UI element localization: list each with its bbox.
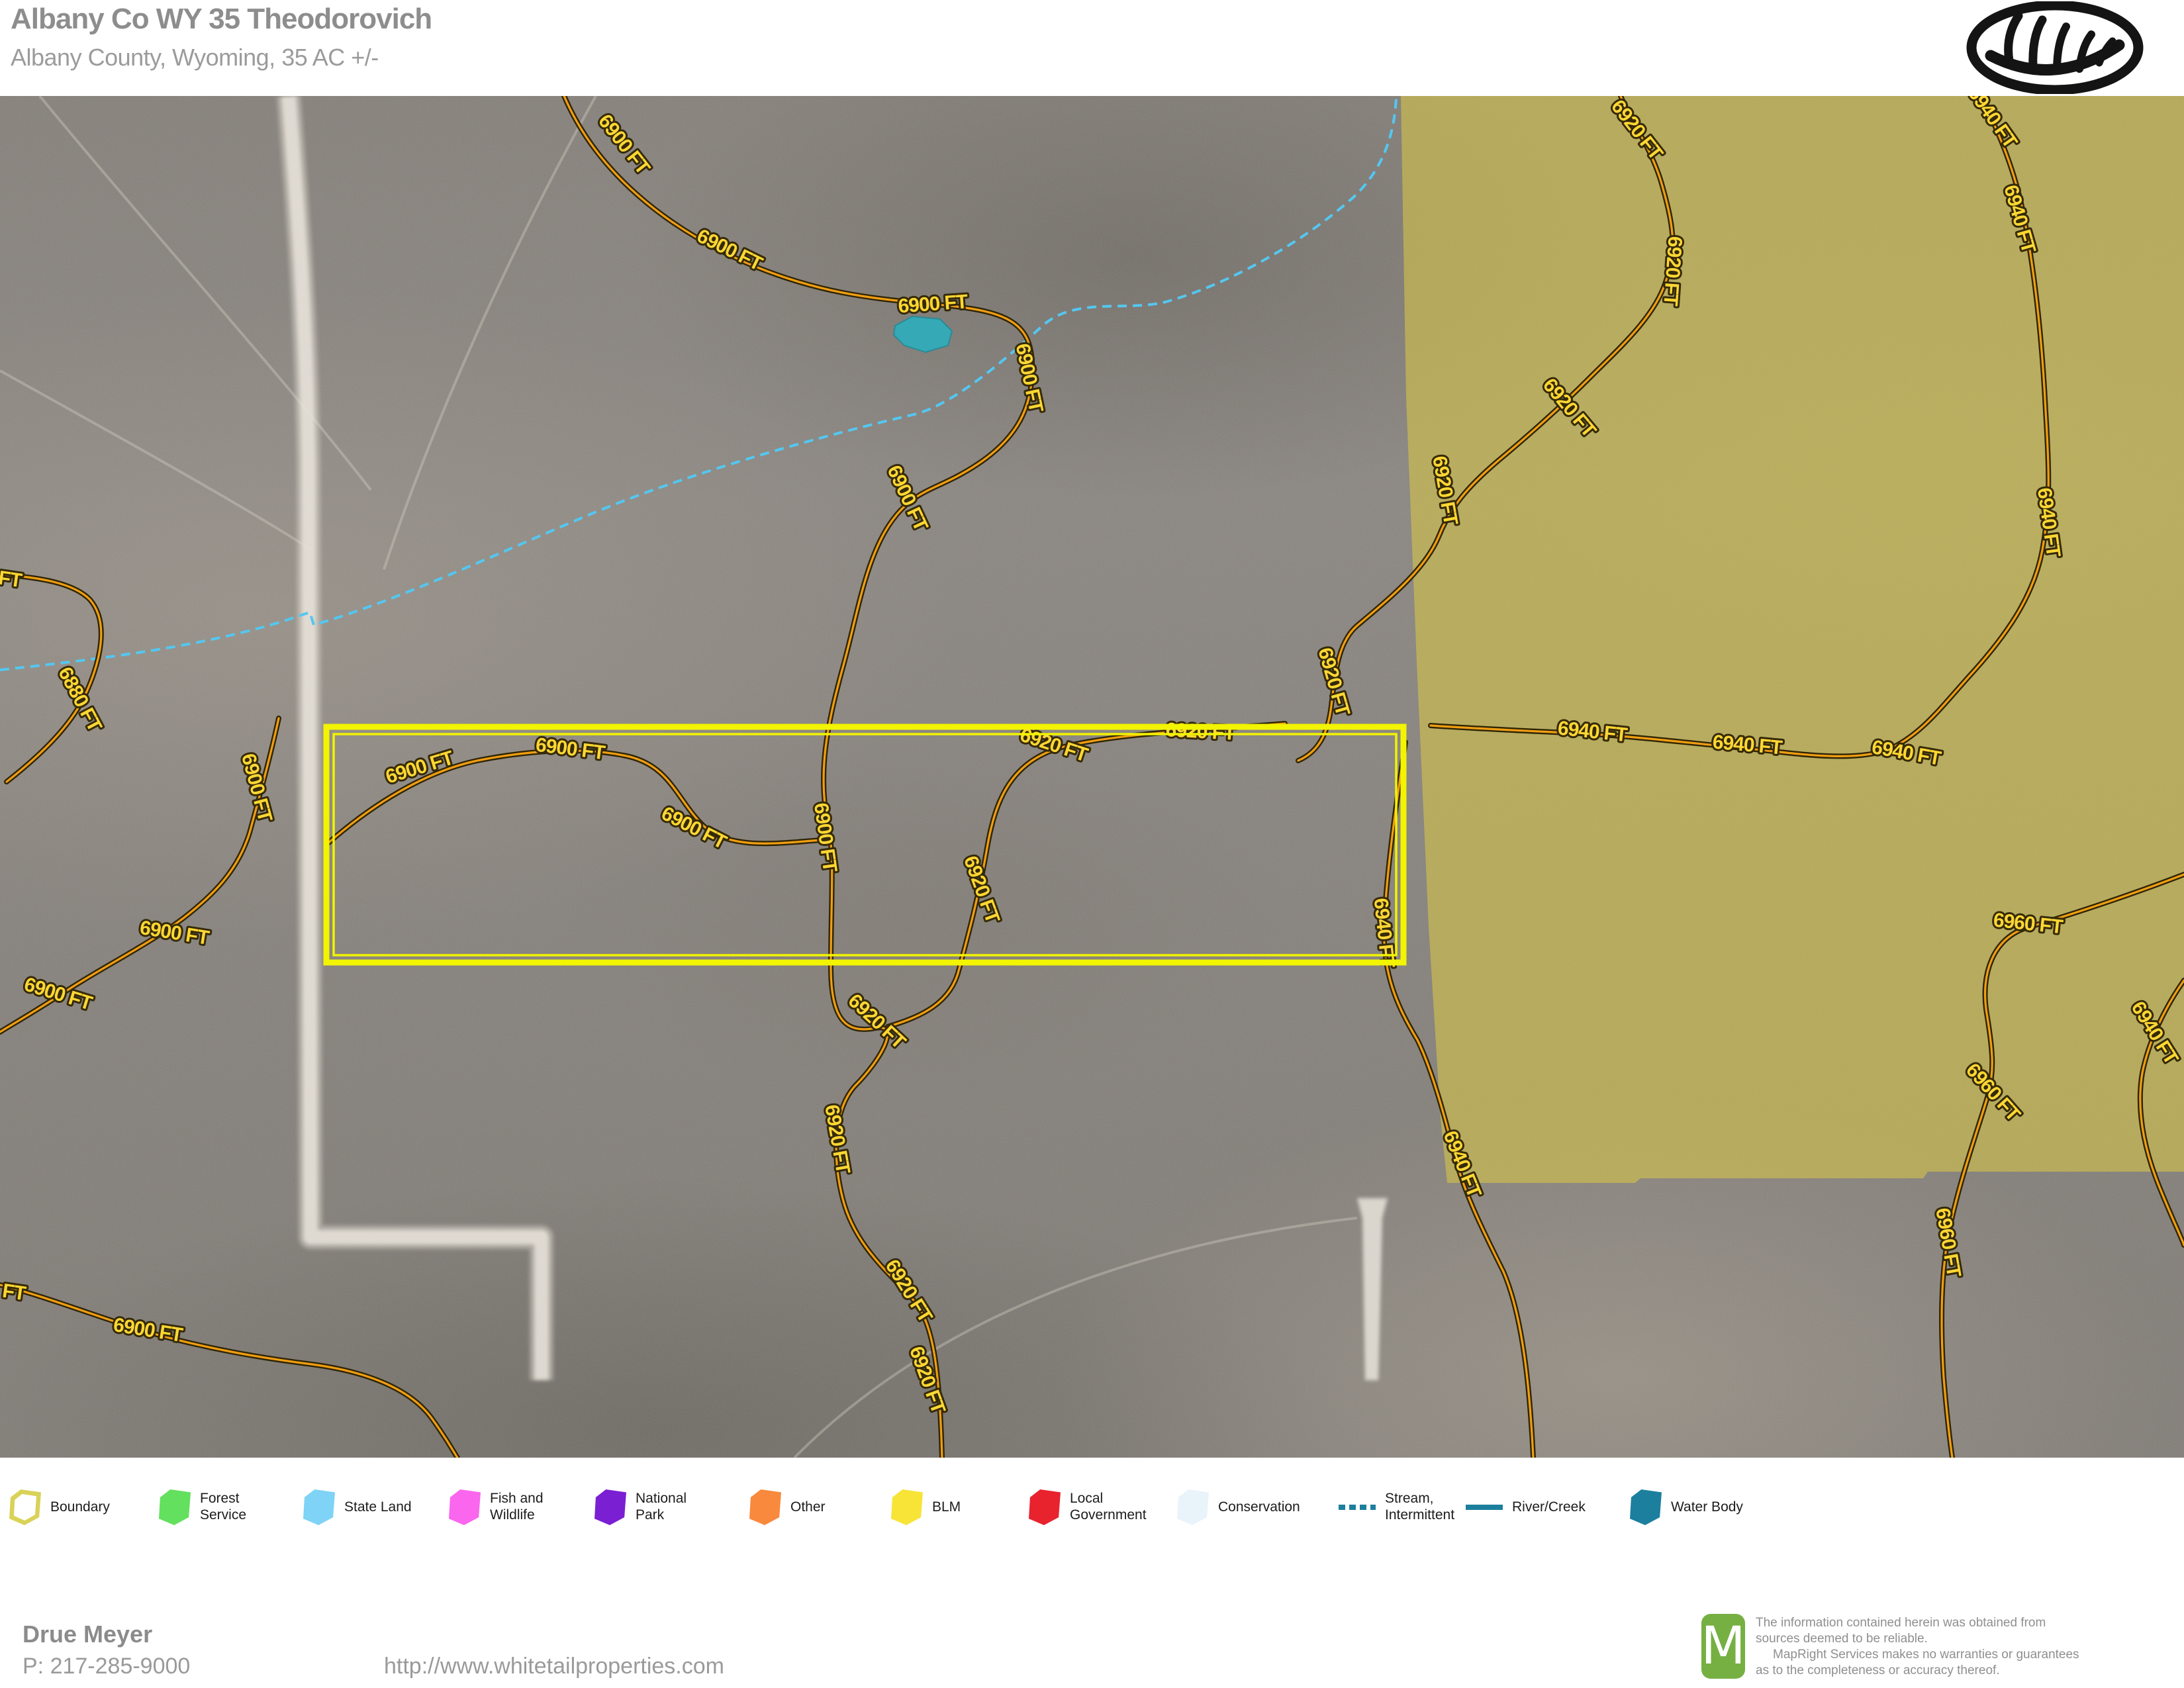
legend-color-swatch (891, 1489, 923, 1525)
legend-item-blm: BLM (891, 1458, 961, 1557)
legend-color-swatch (749, 1489, 781, 1525)
disclaimer-line: sources deemed to be reliable. (1756, 1631, 2184, 1647)
contour-elevation-label: 6920 FT (1165, 719, 1236, 744)
legend-label: Water Body (1671, 1499, 1743, 1516)
legend-label: State Land (344, 1499, 412, 1516)
legend-color-swatch (1630, 1489, 1662, 1525)
map-overlays: 6900 FT6900 FT6900 FT6900 FT6900 FT6880 … (0, 96, 2184, 1458)
legend-label: Local Government (1070, 1491, 1153, 1524)
legend-item-stream-intermittent: Stream, Intermittent (1339, 1458, 1468, 1557)
legend-item-other: Other (749, 1458, 826, 1557)
blm-polygon (1401, 96, 2184, 1183)
legend-outline-swatch (9, 1489, 41, 1525)
legend-item-river-creek: River/Creek (1466, 1458, 1586, 1557)
legend-label: Other (790, 1499, 826, 1516)
mapright-logo: M (1701, 1614, 1745, 1679)
legend-label: Conservation (1218, 1499, 1300, 1516)
legend: BoundaryForest ServiceState LandFish and… (0, 1458, 2184, 1557)
legend-item-water-body: Water Body (1630, 1458, 1743, 1557)
map-title: Albany Co WY 35 Theodorovich (11, 3, 432, 36)
legend-label: Stream, Intermittent (1385, 1491, 1468, 1524)
website-link[interactable]: http://www.whitetailproperties.com (384, 1654, 724, 1679)
legend-label: National Park (636, 1491, 718, 1524)
mapright-m-icon: M (1701, 1620, 1745, 1672)
map-subtitle: Albany County, Wyoming, 35 AC +/- (11, 44, 379, 71)
legend-item-fish-and-wildlife: Fish and Wildlife (449, 1458, 573, 1557)
disclaimer-line: as to the completeness or accuracy there… (1756, 1663, 2184, 1679)
legend-color-swatch (594, 1489, 626, 1525)
legend-item-forest-service: Forest Service (159, 1458, 283, 1557)
solid-line-swatch (1466, 1505, 1503, 1510)
page: Albany Co WY 35 Theodorovich Albany Coun… (0, 0, 2184, 1688)
legend-item-conservation: Conservation (1177, 1458, 1300, 1557)
legend-item-national-park: National Park (594, 1458, 718, 1557)
blm-land-overlay (1401, 96, 2184, 1183)
legend-label: Forest Service (200, 1491, 283, 1524)
legend-label: Fish and Wildlife (490, 1491, 573, 1524)
legend-item-boundary: Boundary (9, 1458, 110, 1557)
legend-label: BLM (932, 1499, 961, 1516)
footer: Drue Meyer P: 217-285-9000 http://www.wh… (0, 1594, 2184, 1688)
disclaimer-line: MapRight Services makes no warranties or… (1756, 1647, 2184, 1663)
legend-color-swatch (1177, 1489, 1209, 1525)
whitetail-antler-logo (1966, 1, 2144, 94)
legend-color-swatch (159, 1489, 191, 1525)
legend-label: River/Creek (1512, 1499, 1586, 1516)
agent-name: Drue Meyer (23, 1620, 152, 1648)
legend-item-state-land: State Land (303, 1458, 412, 1557)
legend-item-local-government: Local Government (1029, 1458, 1153, 1557)
legend-color-swatch (449, 1489, 481, 1525)
disclaimer-line: The information contained herein was obt… (1756, 1615, 2184, 1631)
dashed-line-swatch (1339, 1505, 1376, 1510)
map-canvas: 6900 FT6900 FT6900 FT6900 FT6900 FT6880 … (0, 96, 2184, 1458)
legend-color-swatch (303, 1489, 335, 1525)
disclaimer-text: The information contained herein was obt… (1756, 1615, 2184, 1679)
boundary-swatch-fill (14, 1494, 36, 1521)
header: Albany Co WY 35 Theodorovich Albany Coun… (0, 0, 2184, 96)
legend-label: Boundary (50, 1499, 110, 1516)
agent-phone: P: 217-285-9000 (23, 1654, 190, 1679)
legend-color-swatch (1029, 1489, 1061, 1525)
